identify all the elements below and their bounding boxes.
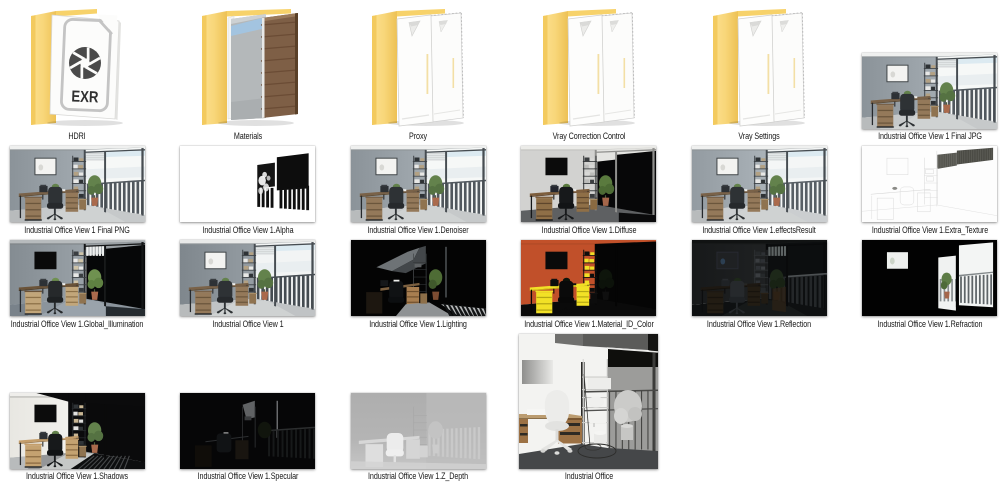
svg-text:EXR: EXR [71, 89, 99, 107]
